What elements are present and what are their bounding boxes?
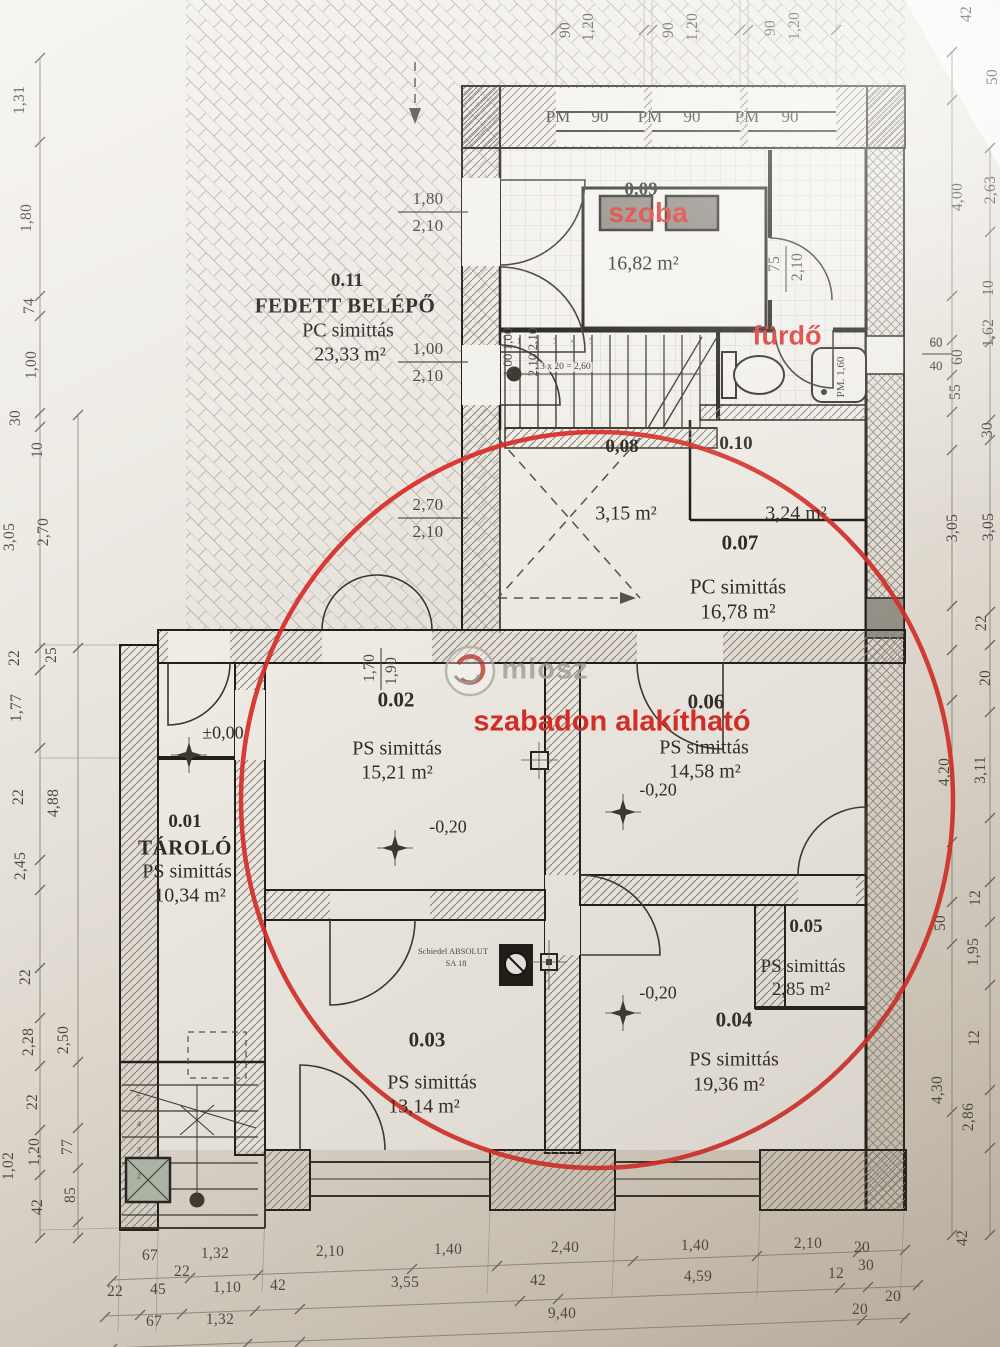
door-size: 2,10 [413, 216, 444, 236]
door-size: 1,80 [413, 189, 444, 209]
dim-label: 22 [973, 615, 991, 631]
dim-label: 1,00 [23, 351, 41, 379]
window-label: 90 [684, 107, 701, 127]
dim-label: 22 [17, 969, 35, 985]
dim-label: 20 [852, 1301, 868, 1319]
dim-label: 22 [107, 1283, 123, 1301]
dim-label: 12 [967, 890, 985, 906]
dim-label: 1,62 [980, 319, 998, 347]
room-001-name: TÁROLÓ [138, 836, 232, 861]
dim-label: 77 [59, 1139, 77, 1155]
dim-label: 60 [930, 334, 943, 350]
level-004: -0,20 [639, 983, 677, 1004]
dim-label: 22 [24, 1094, 42, 1110]
dim-label: 3,11 [972, 756, 990, 784]
dim-label: 1,40 [681, 1237, 709, 1255]
dim-label: 4,00 [949, 183, 967, 211]
dim-label: 20 [854, 1239, 870, 1257]
dim-label: 22 [10, 789, 28, 805]
dim-label: 90 [557, 22, 575, 38]
dim-label: 2,63 [982, 176, 1000, 204]
dim-label: 2,86 [960, 1103, 978, 1131]
dim-label: 10 [29, 442, 47, 458]
door-size: 2,10 [789, 253, 807, 281]
room-011-name: FEDETT BELÉPŐ [255, 294, 436, 319]
dim-label: 20 [977, 670, 995, 686]
stair-step: 2 [137, 1172, 141, 1181]
dim-label: 60 [949, 349, 967, 365]
dim-label: 90 [660, 22, 678, 38]
room-008-number: 0,08 [605, 436, 638, 458]
room-003-area: 13,14 m² [388, 1096, 460, 1119]
dim-label: 1,02 [0, 1152, 18, 1180]
dim-label: 30 [979, 422, 997, 438]
door-size: 1,00 [413, 339, 444, 359]
dim-label: 1,20 [580, 13, 598, 41]
dim-label: 1,31 [11, 86, 29, 114]
dim-label: 1,40 [434, 1241, 462, 1259]
room-010-number: 0.10 [719, 433, 752, 455]
room-004-number: 0.04 [716, 1008, 753, 1033]
floor-plan-photo: 0.11 FEDETT BELÉPŐ PC simittás 23,33 m² … [0, 0, 1000, 1347]
door-size: 1,70 [361, 654, 379, 682]
room-007-number: 0.07 [722, 531, 759, 556]
dim-label: 1,95 [965, 938, 983, 966]
window-label: 90 [782, 107, 799, 127]
dim-label: 3,55 [391, 1274, 419, 1292]
chimney-label-1: Schiedel ABSOLUT [418, 946, 488, 956]
dim-label: 20 [885, 1288, 901, 1306]
room-011-finish: PC simittás [302, 320, 394, 343]
dim-label: 55 [947, 384, 965, 400]
door-size: 75 [766, 256, 784, 272]
stair-step: 3 [553, 337, 557, 346]
room-007-area: 16,78 m² [700, 600, 775, 625]
dim-label: 42 [270, 1277, 286, 1295]
dim-label: 1,77 [8, 694, 26, 722]
dim-label: 4,59 [684, 1268, 712, 1286]
dim-label: 30 [7, 410, 25, 426]
dim-label: 67 [146, 1313, 162, 1331]
level-zero: ±0,00 [202, 723, 243, 744]
stair-step: 4 [137, 1120, 141, 1129]
dim-label: 85 [62, 1187, 80, 1203]
dim-label: 12 [828, 1265, 844, 1283]
dim-label: 42 [954, 1230, 972, 1246]
dim-label: 67 [142, 1247, 158, 1265]
dim-label: 2,10 [316, 1243, 344, 1261]
room-002-number: 0.02 [378, 688, 415, 713]
watermark-text: miosz [501, 654, 588, 687]
dim-label: 22 [174, 1263, 190, 1281]
room-008-area: 3,15 m² [595, 503, 657, 526]
dim-label: 3,05 [944, 514, 962, 542]
dim-label: 2,28 [20, 1028, 38, 1056]
dim-label: 2,10 [794, 1235, 822, 1253]
dim-label: 74 [21, 298, 39, 314]
dim-label: 25 [43, 647, 61, 663]
dim-label: 3,05 [1, 523, 19, 551]
washing-machine-label: PM. 1,60 [835, 357, 847, 398]
stair-step: 4 [571, 337, 575, 346]
dim-label: 1,20 [684, 13, 702, 41]
dim-label: 2,50 [55, 1026, 73, 1054]
dim-label: 1,80 [18, 204, 36, 232]
door-size: 1,90 [383, 657, 401, 685]
dim-label: 9,40 [548, 1305, 576, 1323]
window-label: PM [638, 107, 663, 127]
stair-step: 2 [535, 337, 539, 346]
room-004-finish: PS simittás [689, 1049, 778, 1072]
door-size: 2,10 [413, 366, 444, 386]
door-size: 1,00 1,00 [500, 328, 516, 377]
dim-label: 4,20 [936, 758, 954, 786]
window-label: PM [546, 107, 571, 127]
level-002: -0,20 [429, 817, 467, 838]
room-001-area: 10,34 m² [154, 885, 226, 908]
room-006-area: 14,58 m² [669, 761, 741, 784]
dim-label: 1,32 [206, 1311, 234, 1329]
dim-label: 1,10 [213, 1279, 241, 1297]
dim-label: 90 [762, 20, 780, 36]
floor-plan-drawing [0, 0, 1000, 1347]
stair-step: 1 [517, 337, 521, 346]
room-011-area: 23,33 m² [314, 344, 386, 367]
dim-label: 4,30 [929, 1076, 947, 1104]
dim-label: 1,20 [786, 12, 804, 40]
annotation-note: szabadon alakítható [473, 706, 750, 739]
dim-label: 45 [150, 1281, 166, 1299]
dim-label: 50 [932, 915, 950, 931]
dim-label: 22 [6, 650, 24, 666]
dim-label: 2,40 [551, 1239, 579, 1257]
watermark-logo-icon [446, 647, 494, 695]
room-003-finish: PS simittás [387, 1072, 476, 1095]
stair-formula: 13 x 20 = 2,60 [533, 362, 592, 372]
toilet-bowl-icon [734, 356, 784, 394]
dim-label: 50 [984, 69, 1000, 85]
room-002-finish: PS simittás [352, 738, 441, 761]
dim-label: 1,32 [201, 1245, 229, 1263]
door-size: 2,70 [413, 495, 444, 515]
dim-label: 42 [958, 6, 976, 22]
room-005-finish: PS simittás [761, 956, 846, 978]
label-furdo: fürdő [753, 321, 822, 352]
room-005-number: 0.05 [789, 916, 822, 938]
dim-label: 42 [530, 1272, 546, 1290]
room-001-number: 0.01 [168, 811, 201, 833]
room-005-area: 2,85 m² [772, 979, 830, 1001]
room-001-finish: PS simittás [142, 861, 231, 884]
stair-step: 5 [589, 337, 593, 346]
stair-step: 5 [137, 1094, 141, 1103]
stair-step: 3 [137, 1146, 141, 1155]
room-010-area: 3,24 m² [765, 503, 827, 526]
dim-label: 2,70 [35, 518, 53, 546]
room-003-number: 0.03 [409, 1028, 446, 1053]
room-002-area: 15,21 m² [361, 762, 433, 785]
dim-label: 12 [966, 1030, 984, 1046]
dim-label: 1,20 [26, 1138, 44, 1166]
door-size: 2,10 2,10 [525, 328, 541, 377]
dim-label: 40 [930, 358, 943, 374]
window-label: PM [735, 107, 760, 127]
window-label: 90 [592, 107, 609, 127]
room-006-finish: PS simittás [659, 737, 748, 760]
dim-label: 42 [29, 1199, 47, 1215]
dim-label: 2,45 [12, 852, 30, 880]
chimney-label-2: SA 18 [445, 958, 466, 968]
dim-label: 4,88 [45, 789, 63, 817]
dim-label: 30 [858, 1257, 874, 1275]
level-006: -0,20 [639, 780, 677, 801]
room-009-area: 16,82 m² [607, 253, 679, 276]
room-004-area: 19,36 m² [693, 1074, 765, 1097]
door-size: 2,10 [413, 522, 444, 542]
room-007-finish: PC simittás [690, 575, 786, 600]
room-011-number: 0.11 [331, 270, 363, 292]
dim-label: 10 [980, 280, 998, 296]
dim-label: 3,05 [980, 513, 998, 541]
label-szoba: szoba [608, 197, 687, 229]
